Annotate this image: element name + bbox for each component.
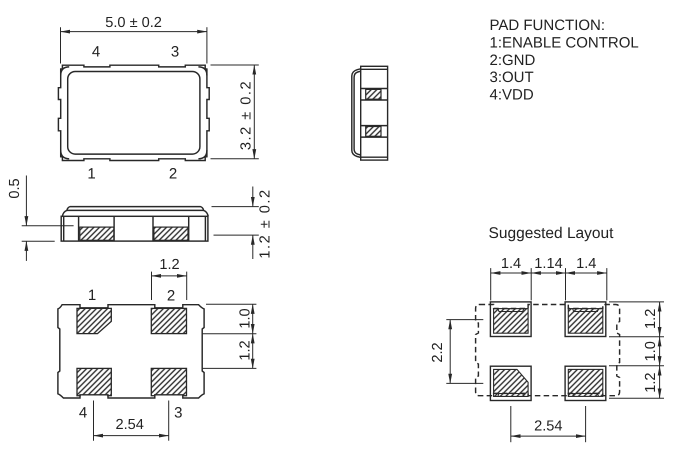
- svg-text:1: 1: [87, 166, 95, 183]
- svg-text:3: 3: [171, 44, 179, 61]
- svg-text:PAD FUNCTION:: PAD FUNCTION:: [490, 17, 606, 34]
- svg-text:1.14: 1.14: [534, 256, 562, 272]
- svg-text:1.2: 1.2: [237, 340, 253, 360]
- svg-text:2.2: 2.2: [430, 342, 446, 362]
- svg-text:1.2: 1.2: [159, 257, 179, 273]
- svg-text:4:VDD: 4:VDD: [490, 87, 534, 104]
- svg-text:Suggested Layout: Suggested Layout: [489, 225, 615, 242]
- svg-text:1.4: 1.4: [576, 256, 596, 272]
- svg-text:2.54: 2.54: [115, 417, 143, 433]
- svg-text:2: 2: [169, 166, 177, 183]
- svg-text:5.0 ± 0.2: 5.0 ± 0.2: [105, 15, 162, 31]
- svg-text:4: 4: [92, 44, 100, 61]
- svg-text:3:OUT: 3:OUT: [490, 69, 534, 86]
- svg-text:2.54: 2.54: [534, 418, 562, 434]
- svg-text:1.0: 1.0: [237, 308, 253, 328]
- svg-text:0.5: 0.5: [7, 178, 23, 198]
- svg-text:3.2 ± 0.2: 3.2 ± 0.2: [238, 80, 254, 150]
- svg-text:1.2 ± 0.2: 1.2 ± 0.2: [258, 188, 274, 258]
- svg-text:2: 2: [167, 288, 175, 305]
- svg-text:1.4: 1.4: [501, 256, 521, 272]
- svg-text:3: 3: [174, 405, 182, 422]
- svg-text:1.2: 1.2: [643, 309, 659, 329]
- svg-text:1: 1: [88, 287, 96, 304]
- svg-text:2:GND: 2:GND: [490, 52, 536, 69]
- svg-text:1.2: 1.2: [643, 372, 659, 392]
- svg-text:1:ENABLE CONTROL: 1:ENABLE CONTROL: [490, 34, 639, 51]
- svg-text:1.0: 1.0: [643, 341, 659, 361]
- svg-text:4: 4: [79, 405, 87, 422]
